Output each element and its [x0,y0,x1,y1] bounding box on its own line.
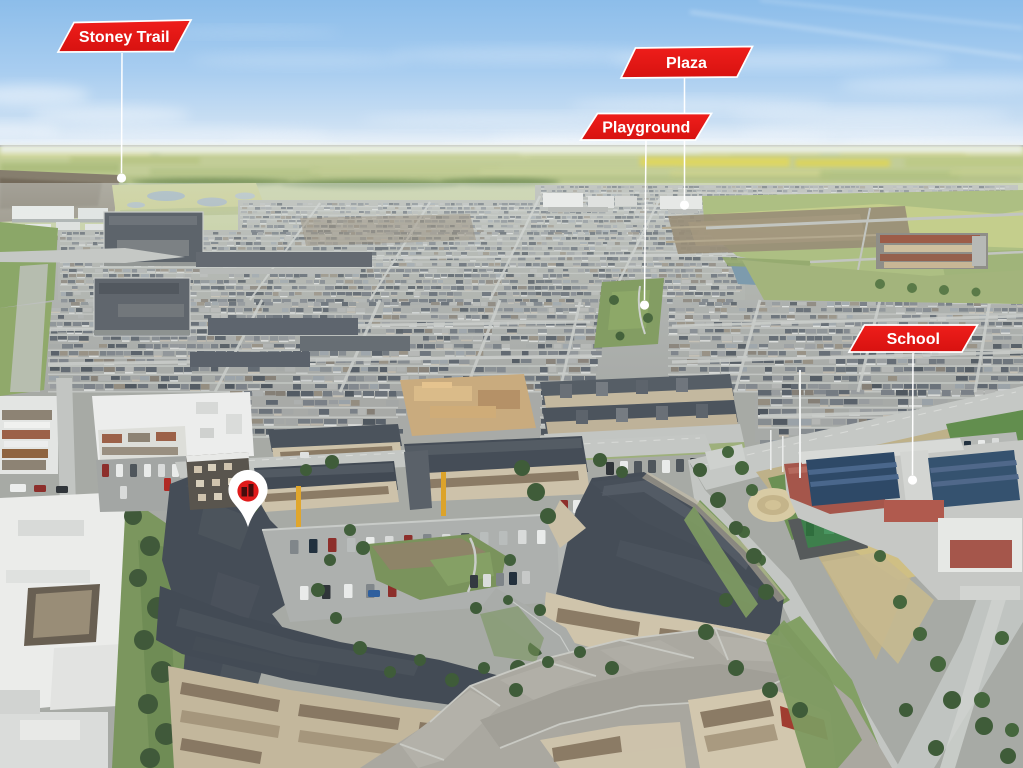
svg-text:School: School [887,331,940,348]
svg-text:Stoney Trail: Stoney Trail [79,29,170,46]
svg-text:Playground: Playground [602,119,690,136]
svg-text:Plaza: Plaza [666,55,707,72]
